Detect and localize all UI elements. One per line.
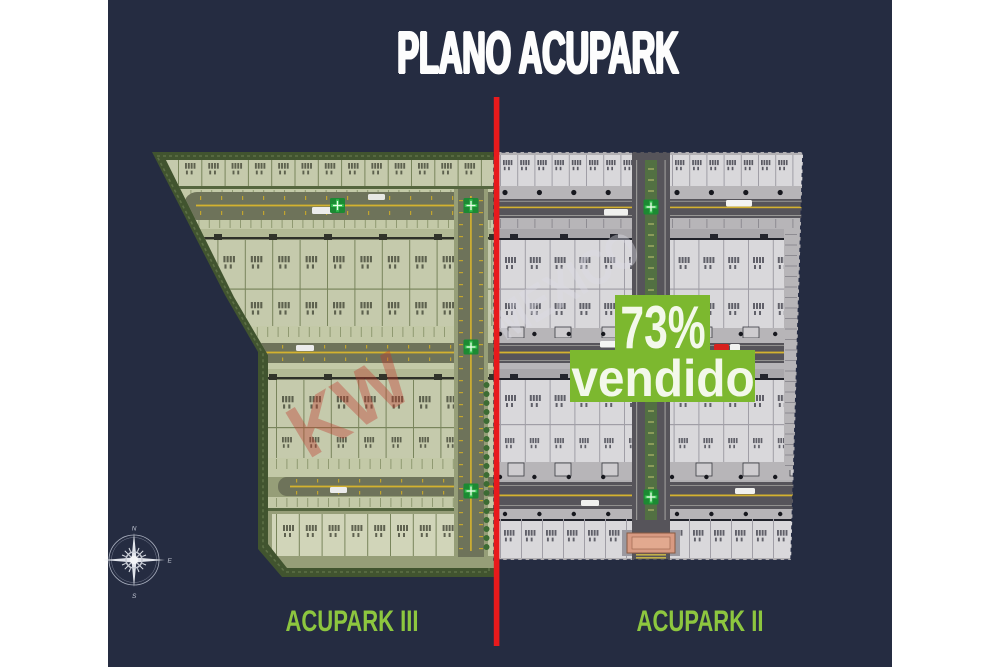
svg-text:N: N [132, 526, 137, 533]
svg-text:vendido: vendido [571, 349, 754, 407]
svg-text:ACUPARK II: ACUPARK II [637, 604, 764, 638]
svg-text:ACUPARK III: ACUPARK III [285, 604, 418, 638]
svg-text:E: E [168, 558, 173, 565]
svg-text:PLANO ACUPARK: PLANO ACUPARK [397, 21, 678, 87]
svg-text:S: S [132, 593, 137, 600]
